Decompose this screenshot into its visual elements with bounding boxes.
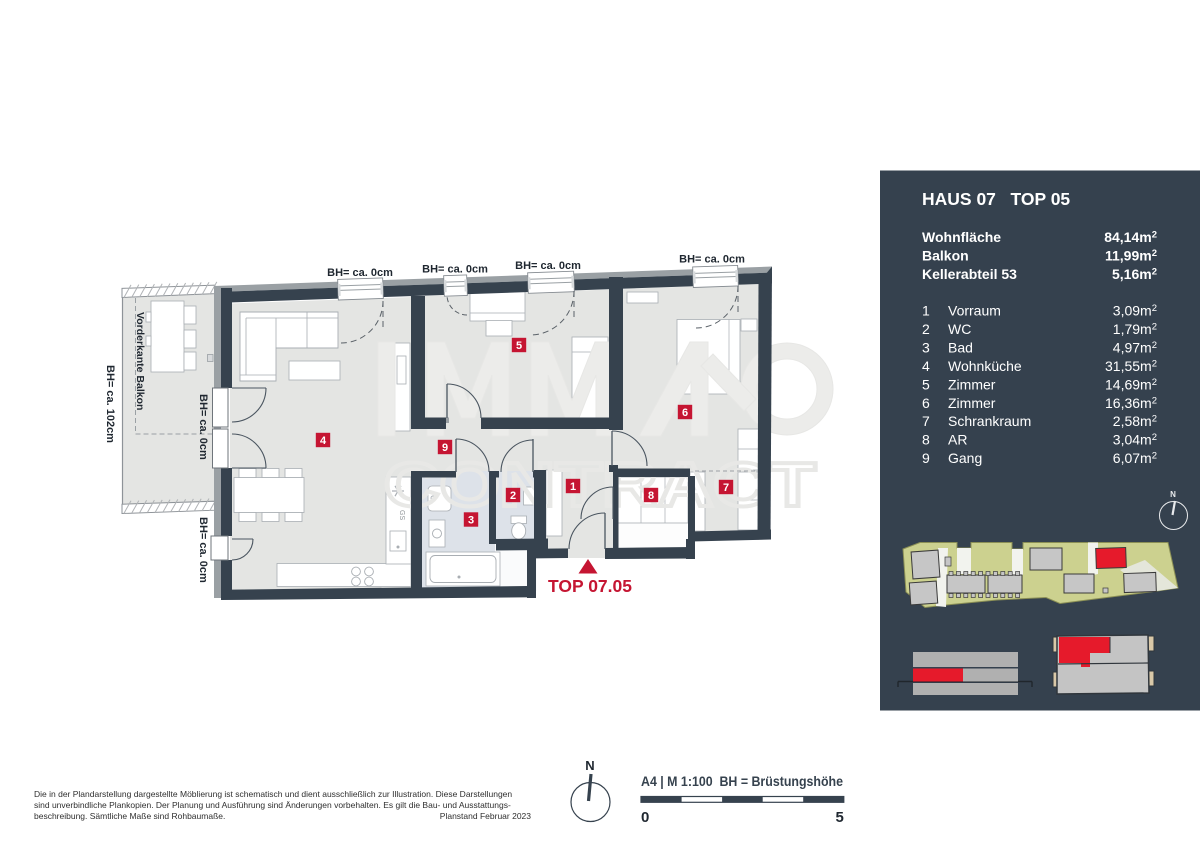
svg-text:Die in der Plandarstellung dar: Die in der Plandarstellung dargestellte … [34,789,512,799]
svg-text:2,58m2: 2,58m2 [1113,413,1157,429]
svg-text:9: 9 [922,450,930,466]
svg-text:7: 7 [922,413,930,429]
svg-text:CONTRACT: CONTRACT [384,451,816,520]
svg-text:TOP 07.05: TOP 07.05 [548,576,632,596]
svg-text:11,99m2: 11,99m2 [1105,248,1157,264]
svg-text:9: 9 [442,442,448,454]
svg-text:BH= ca. 0cm: BH= ca. 0cm [197,394,209,460]
svg-text:Gang: Gang [948,450,982,466]
svg-text:BH= ca. 0cm: BH= ca. 0cm [679,254,745,266]
svg-text:BH= ca. 102cm: BH= ca. 102cm [104,365,116,443]
svg-text:1,79m2: 1,79m2 [1113,321,1157,337]
svg-text:1: 1 [570,481,576,493]
svg-text:Planstand Februar 2023: Planstand Februar 2023 [440,811,531,821]
svg-text:BH= ca. 0cm: BH= ca. 0cm [515,260,581,272]
svg-text:2: 2 [510,490,516,502]
svg-text:6: 6 [922,395,930,411]
svg-text:3,09m2: 3,09m2 [1113,303,1157,319]
svg-text:8: 8 [922,432,930,448]
svg-text:WC: WC [948,321,971,337]
svg-text:3: 3 [468,514,474,526]
svg-text:3,04m2: 3,04m2 [1113,432,1157,448]
svg-text:6: 6 [682,407,688,419]
svg-text:Zimmer: Zimmer [948,395,996,411]
svg-text:Wohnfläche: Wohnfläche [922,229,1001,245]
svg-text:16,36m2: 16,36m2 [1105,395,1157,411]
svg-text:BH= ca. 0cm: BH= ca. 0cm [197,517,209,583]
svg-text:Kellerabteil 53: Kellerabteil 53 [922,266,1017,282]
svg-text:4,97m2: 4,97m2 [1113,339,1157,355]
svg-text:sind unverbindliche Plankopien: sind unverbindliche Plankopien. Der Plan… [34,800,511,810]
svg-text:AR: AR [948,432,967,448]
svg-text:HAUS 07 TOP 05: HAUS 07 TOP 05 [922,189,1070,209]
svg-text:Wohnküche: Wohnküche [948,358,1022,374]
svg-text:0: 0 [641,809,649,826]
svg-text:BH= ca. 0cm: BH= ca. 0cm [327,267,393,279]
svg-text:N: N [585,758,594,773]
svg-text:8: 8 [648,490,654,502]
svg-text:2: 2 [922,321,930,337]
svg-text:14,69m2: 14,69m2 [1105,376,1157,392]
svg-text:5: 5 [516,340,522,352]
svg-text:Vorderkante Balkon: Vorderkante Balkon [134,312,146,410]
svg-text:31,55m2: 31,55m2 [1105,358,1157,374]
svg-text:A4 | M 1:100 BH = Brüstungshö: A4 | M 1:100 BH = Brüstungshöhe [641,773,843,789]
svg-text:7: 7 [723,482,729,494]
svg-text:Bad: Bad [948,339,973,355]
svg-text:5,16m2: 5,16m2 [1112,266,1157,282]
svg-text:1: 1 [922,303,930,319]
svg-text:84,14m2: 84,14m2 [1104,229,1157,245]
svg-text:N: N [1170,490,1176,499]
svg-text:5: 5 [922,376,930,392]
svg-text:4: 4 [922,358,930,374]
svg-text:4: 4 [320,435,327,447]
svg-text:5: 5 [835,809,843,826]
svg-text:3: 3 [922,339,930,355]
svg-text:Schrankraum: Schrankraum [948,413,1031,429]
svg-text:beschreibung. Sämtliche Maße s: beschreibung. Sämtliche Maße sind Rohbau… [34,811,225,821]
svg-text:Balkon: Balkon [922,248,969,264]
svg-text:BH= ca. 0cm: BH= ca. 0cm [422,264,488,276]
svg-text:Zimmer: Zimmer [948,376,996,392]
svg-text:Vorraum: Vorraum [948,303,1001,319]
svg-text:6,07m2: 6,07m2 [1113,450,1157,466]
